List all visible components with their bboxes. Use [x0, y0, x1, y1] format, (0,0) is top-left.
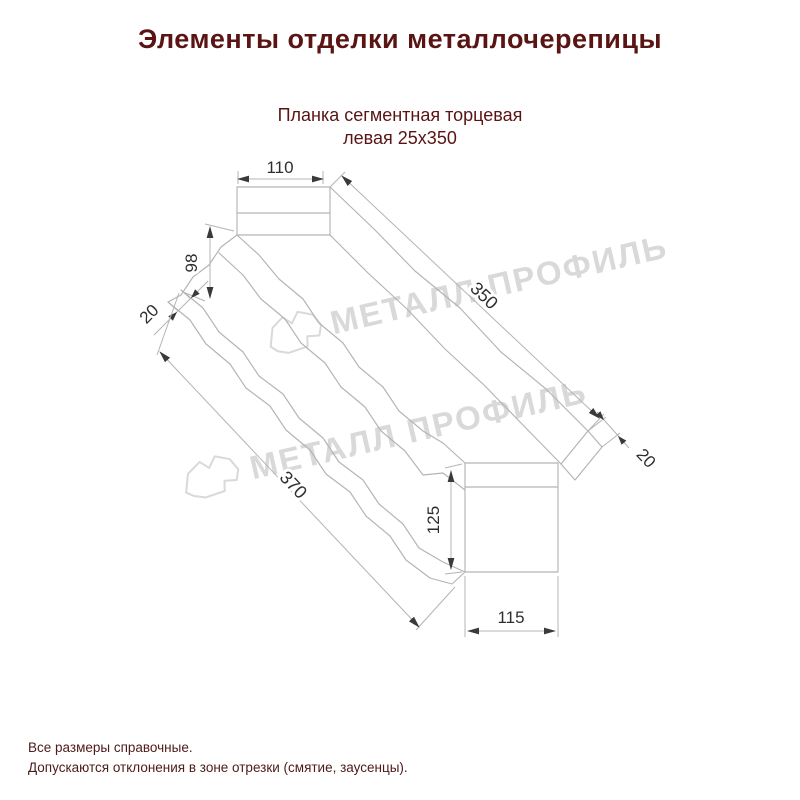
right-end-face	[465, 463, 558, 572]
footer-note-2: Допускаются отклонения в зоне отрезки (с…	[28, 760, 408, 775]
dim-20-right-label: 20	[633, 445, 660, 472]
metal-profil-logo-icon	[180, 452, 243, 502]
dim-20-left-label: 20	[136, 301, 163, 328]
dim-98-label: 98	[182, 254, 201, 273]
dim-125-label: 125	[424, 506, 443, 534]
technical-drawing: МЕТАЛЛ ПРОФИЛЬ МЕТАЛЛ ПРОФИЛЬ	[0, 0, 800, 800]
footer-note-1: Все размеры справочные.	[28, 740, 193, 755]
dim-110-label: 110	[266, 158, 293, 177]
dim-left-hem: 20	[136, 281, 208, 335]
metal-profil-logo-icon	[264, 307, 325, 356]
dim-115-label: 115	[497, 608, 524, 627]
dim-right-width: 115	[465, 576, 558, 637]
dim-right-height: 125	[424, 464, 462, 574]
drawing-page: Элементы отделки металлочерепицы Планка …	[0, 0, 800, 800]
dim-flange-width: 110	[238, 158, 323, 184]
left-end-face	[237, 187, 330, 235]
dim-left-height: 98	[182, 224, 234, 301]
